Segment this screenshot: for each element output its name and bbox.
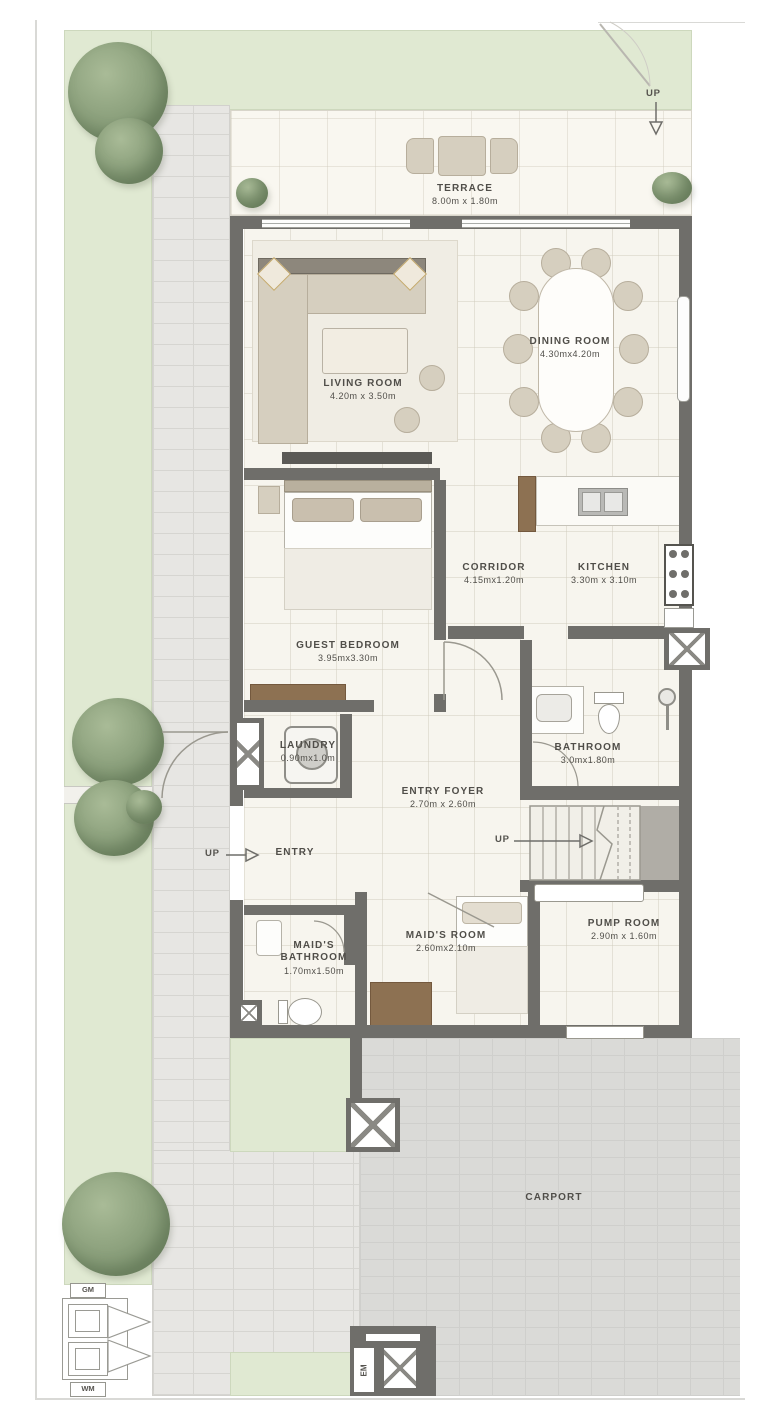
tree-icon [72, 698, 164, 786]
room-name: PUMP ROOM [588, 918, 661, 929]
floor-plan: EM GM WM [0, 0, 768, 1427]
room-label-maids-bathroom: MAID'S BATHROOM 1.70mx1.50m [272, 940, 356, 976]
column [236, 1000, 262, 1026]
room-dims: 1.70mx1.50m [272, 966, 356, 976]
room-dims: 4.20m x 3.50m [323, 391, 402, 401]
room-name: ENTRY FOYER [402, 786, 485, 797]
dining-chair [613, 281, 643, 311]
wall [520, 640, 532, 790]
room-label-corridor: CORRIDOR 4.15mx1.20m [462, 562, 525, 585]
tv-console [282, 452, 432, 464]
room-dims: 2.60mx2.10m [406, 943, 487, 953]
room-label-kitchen: KITCHEN 3.30m x 3.10m [571, 562, 637, 585]
room-label-pump-room: PUMP ROOM 2.90m x 1.60m [588, 918, 661, 941]
shrub-icon [652, 172, 692, 204]
wall [528, 892, 540, 1038]
up-label-garden: UP [646, 88, 661, 99]
wm-text: WM [81, 1384, 94, 1393]
room-label-carport: CARPORT [525, 1192, 582, 1203]
tree-icon [95, 118, 163, 184]
pouf [394, 407, 420, 433]
room-name: DINING ROOM [530, 336, 611, 347]
terrace-table [438, 136, 486, 176]
lawn-left-strip [64, 30, 152, 1285]
tree-icon [62, 1172, 170, 1276]
stair-shelf [534, 884, 644, 902]
gas-meter-label: GM [70, 1283, 106, 1298]
room-name: BATHROOM [555, 742, 622, 753]
bed-blanket [456, 946, 528, 1014]
room-name: GUEST BEDROOM [296, 640, 400, 651]
room-name: ENTRY [275, 847, 314, 858]
maid-toilet-tank [278, 1000, 288, 1024]
room-name: TERRACE [432, 183, 498, 194]
dining-chair [613, 387, 643, 417]
bed-blanket [284, 548, 432, 610]
wall [244, 700, 374, 712]
wall [520, 786, 692, 800]
window [677, 296, 690, 402]
em-label-box: EM [354, 1348, 374, 1392]
lawn-patch-mid [230, 1038, 360, 1152]
room-dims: 3.30m x 3.10m [571, 575, 637, 585]
nightstand [258, 486, 280, 514]
room-dims: 2.90m x 1.60m [588, 931, 661, 941]
tree-icon [126, 790, 162, 824]
shower-pole [666, 704, 669, 730]
maid-toilet-bowl [288, 998, 322, 1026]
room-dims: 8.00m x 1.80m [432, 196, 498, 206]
kitchen-sink-bowl [604, 492, 623, 512]
frame-top-line [598, 22, 745, 23]
room-name: CARPORT [525, 1192, 582, 1203]
room-name: KITCHEN [571, 562, 637, 573]
bed-pillow [292, 498, 354, 522]
stove-burner [669, 550, 677, 558]
water-meter-label: WM [70, 1382, 106, 1397]
kitchen-sink-bowl [582, 492, 601, 512]
wall [244, 905, 356, 915]
kitchen-cabinet [518, 476, 536, 532]
meter-box-inner [75, 1348, 100, 1370]
maid-wardrobe [370, 982, 432, 1026]
room-dims: 2.70m x 2.60m [402, 799, 485, 809]
wall [230, 1025, 362, 1038]
dining-chair [619, 334, 649, 364]
room-name: LAUNDRY [280, 740, 336, 751]
dining-chair [503, 334, 533, 364]
up-label-entry: UP [205, 848, 220, 859]
terrace-chair [406, 138, 434, 174]
bed-pillow [462, 902, 522, 924]
room-dims: 4.30mx4.20m [530, 349, 611, 359]
room-label-guest-bedroom: GUEST BEDROOM 3.95mx3.30m [296, 640, 400, 663]
room-label-dining-room: DINING ROOM 4.30mx4.20m [530, 336, 611, 359]
room-name: MAID'S ROOM [406, 930, 487, 941]
kitchen-appliance [664, 608, 694, 628]
room-dims: 4.15mx1.20m [462, 575, 525, 585]
dining-chair [509, 387, 539, 417]
toilet-tank [594, 692, 624, 704]
lawn-patch-bottom [230, 1352, 358, 1396]
up-label-stairs: UP [495, 834, 510, 845]
room-name: LIVING ROOM [323, 378, 402, 389]
room-label-maids-room: MAID'S ROOM 2.60mx2.10m [406, 930, 487, 953]
window [262, 219, 410, 228]
gm-text: GM [82, 1285, 94, 1294]
em-bar [366, 1334, 420, 1341]
wall [355, 892, 367, 1038]
pouf [419, 365, 445, 391]
room-dims: 3.0mx1.80m [555, 755, 622, 765]
window [462, 219, 630, 228]
room-label-laundry: LAUNDRY 0.90mx1.0m [280, 740, 336, 763]
column [380, 1344, 420, 1392]
wall [350, 1038, 362, 1100]
room-name: MAID'S BATHROOM [272, 940, 356, 964]
dining-chair [509, 281, 539, 311]
em-label: EM [360, 1364, 369, 1376]
frame-bottom-line [35, 1398, 745, 1400]
wall [244, 468, 440, 480]
room-label-terrace: TERRACE 8.00m x 1.80m [432, 183, 498, 206]
wall [448, 626, 524, 639]
terrace-chair [490, 138, 518, 174]
room-label-bathroom: BATHROOM 3.0mx1.80m [555, 742, 622, 765]
room-dims: 3.95mx3.30m [296, 653, 400, 663]
pump-room-door [566, 1026, 644, 1039]
guest-bed-headboard [284, 480, 432, 492]
wall [340, 714, 352, 796]
bed-pillow [360, 498, 422, 522]
sofa-chaise [258, 274, 308, 444]
bathroom-sink [536, 694, 572, 722]
meter-box-inner [75, 1310, 100, 1332]
wall [434, 694, 446, 712]
column [346, 1098, 400, 1152]
shrub-icon [236, 178, 268, 208]
column [232, 718, 264, 790]
column [664, 628, 710, 670]
room-name: CORRIDOR [462, 562, 525, 573]
room-label-entry: ENTRY [275, 847, 314, 858]
frame-left-line [35, 20, 37, 1400]
coffee-table [322, 328, 408, 374]
room-dims: 0.90mx1.0m [280, 753, 336, 763]
room-label-entry-foyer: ENTRY FOYER 2.70m x 2.60m [402, 786, 485, 809]
wall [434, 480, 446, 640]
room-label-living-room: LIVING ROOM 4.20m x 3.50m [323, 378, 402, 401]
